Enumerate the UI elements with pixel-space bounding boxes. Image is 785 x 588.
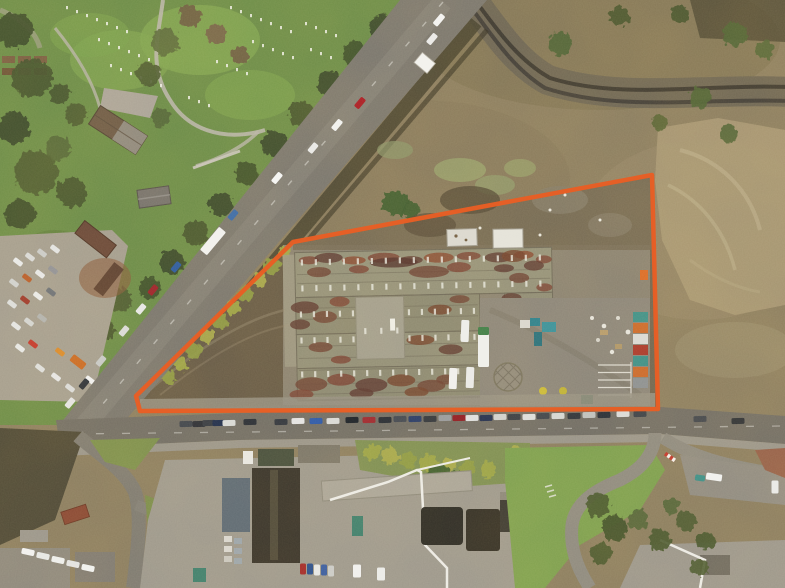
film-grain-overlay bbox=[0, 0, 785, 588]
aerial-photo-canvas bbox=[0, 0, 785, 588]
aerial-site-photo bbox=[0, 0, 785, 588]
